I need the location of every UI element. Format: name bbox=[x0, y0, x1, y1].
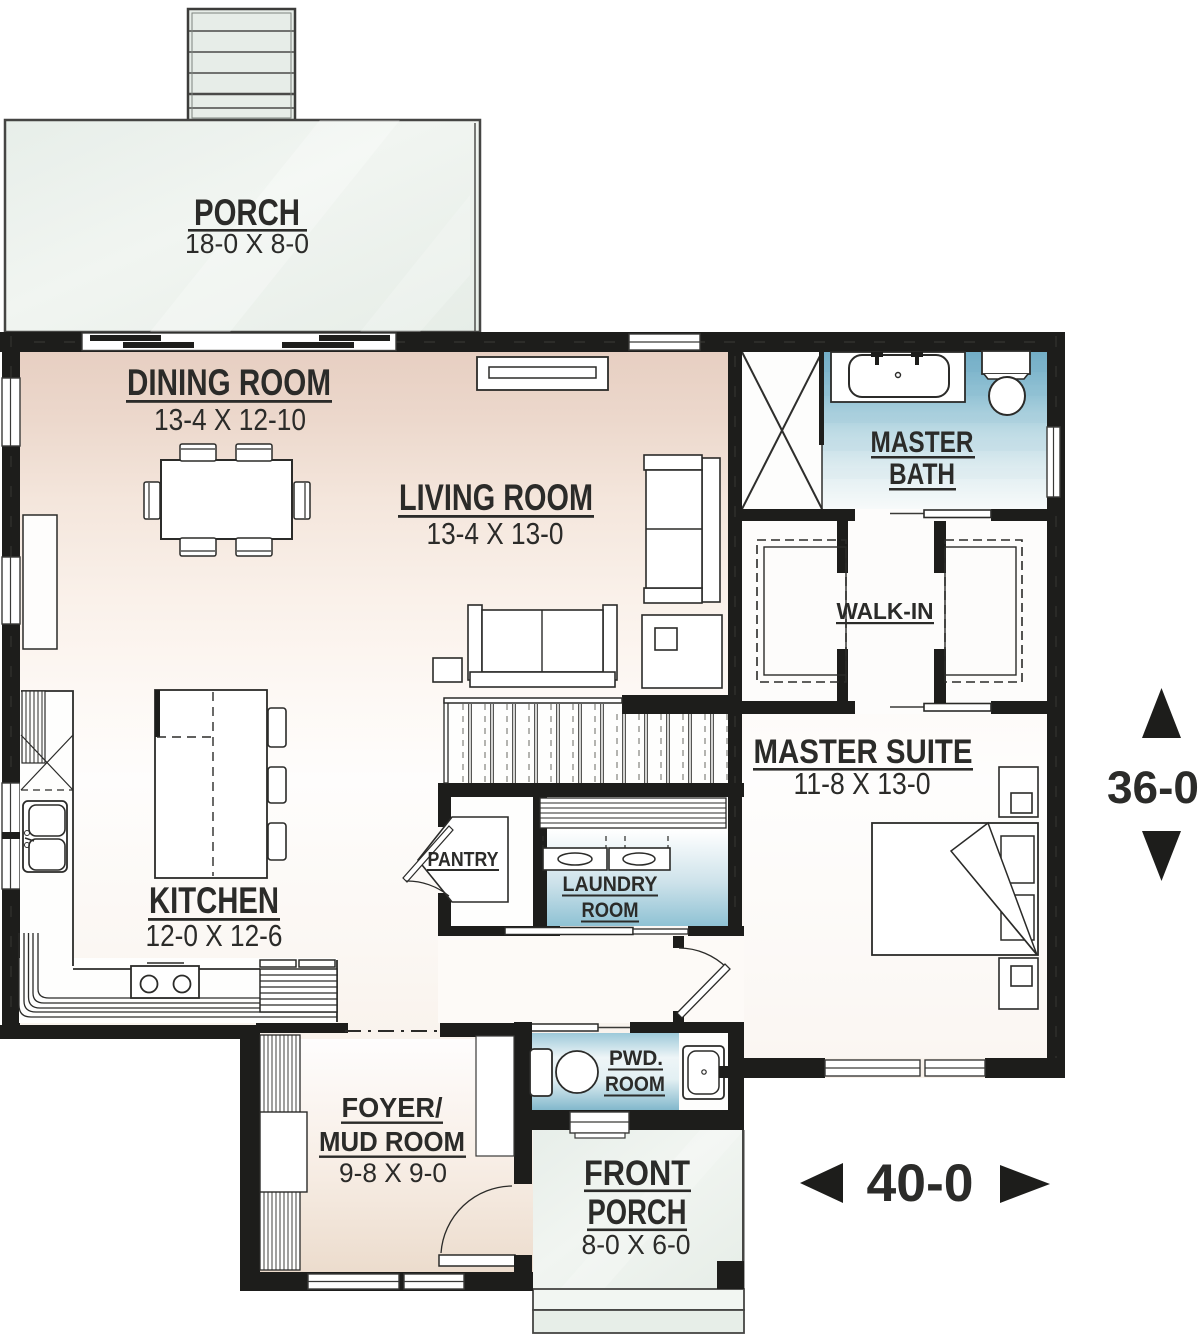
svg-text:11-8 X 13-0: 11-8 X 13-0 bbox=[794, 766, 931, 801]
svg-text:ROOM: ROOM bbox=[605, 1072, 665, 1096]
svg-text:PORCH: PORCH bbox=[588, 1193, 687, 1232]
svg-text:36-0: 36-0 bbox=[1107, 762, 1199, 813]
svg-text:FOYER/: FOYER/ bbox=[342, 1092, 443, 1123]
svg-text:PWD.: PWD. bbox=[609, 1046, 663, 1070]
svg-text:13-4 X 12-10: 13-4 X 12-10 bbox=[154, 402, 306, 437]
svg-text:13-4 X 13-0: 13-4 X 13-0 bbox=[427, 516, 564, 551]
svg-text:ROOM: ROOM bbox=[582, 898, 639, 922]
svg-text:BATH: BATH bbox=[889, 458, 955, 491]
svg-text:PORCH: PORCH bbox=[194, 192, 300, 233]
svg-text:PANTRY: PANTRY bbox=[428, 849, 500, 871]
svg-text:FRONT: FRONT bbox=[584, 1154, 690, 1193]
svg-text:KITCHEN: KITCHEN bbox=[149, 880, 279, 921]
svg-text:8-0 X 6-0: 8-0 X 6-0 bbox=[582, 1229, 691, 1260]
svg-text:DINING ROOM: DINING ROOM bbox=[127, 362, 331, 403]
svg-text:9-8 X 9-0: 9-8 X 9-0 bbox=[339, 1158, 447, 1188]
svg-text:40-0: 40-0 bbox=[867, 1154, 974, 1213]
svg-text:18-0 X 8-0: 18-0 X 8-0 bbox=[185, 228, 309, 259]
svg-text:WALK-IN: WALK-IN bbox=[837, 598, 934, 624]
svg-text:MUD ROOM: MUD ROOM bbox=[319, 1126, 465, 1157]
svg-text:LAUNDRY: LAUNDRY bbox=[563, 872, 658, 896]
svg-text:MASTER: MASTER bbox=[871, 426, 974, 459]
svg-text:LIVING ROOM: LIVING ROOM bbox=[399, 477, 593, 518]
svg-text:12-0 X 12-6: 12-0 X 12-6 bbox=[146, 918, 283, 953]
